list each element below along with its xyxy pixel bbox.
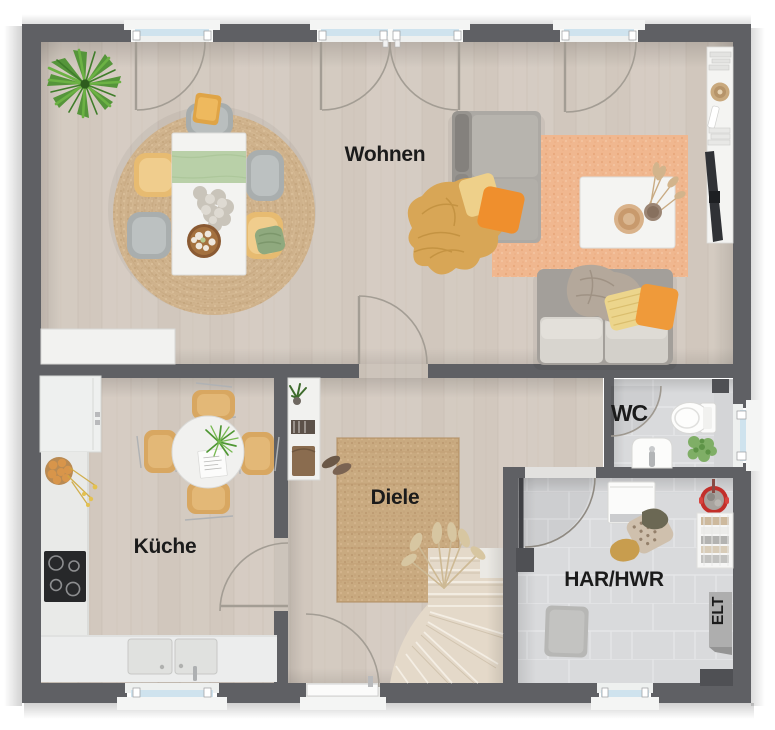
svg-text:WC: WC	[611, 400, 648, 426]
svg-text:Diele: Diele	[371, 486, 420, 509]
svg-text:ELT: ELT	[710, 596, 727, 625]
svg-text:Küche: Küche	[134, 535, 197, 558]
svg-text:HAR/HWR: HAR/HWR	[564, 568, 664, 591]
svg-text:Wohnen: Wohnen	[345, 143, 426, 166]
